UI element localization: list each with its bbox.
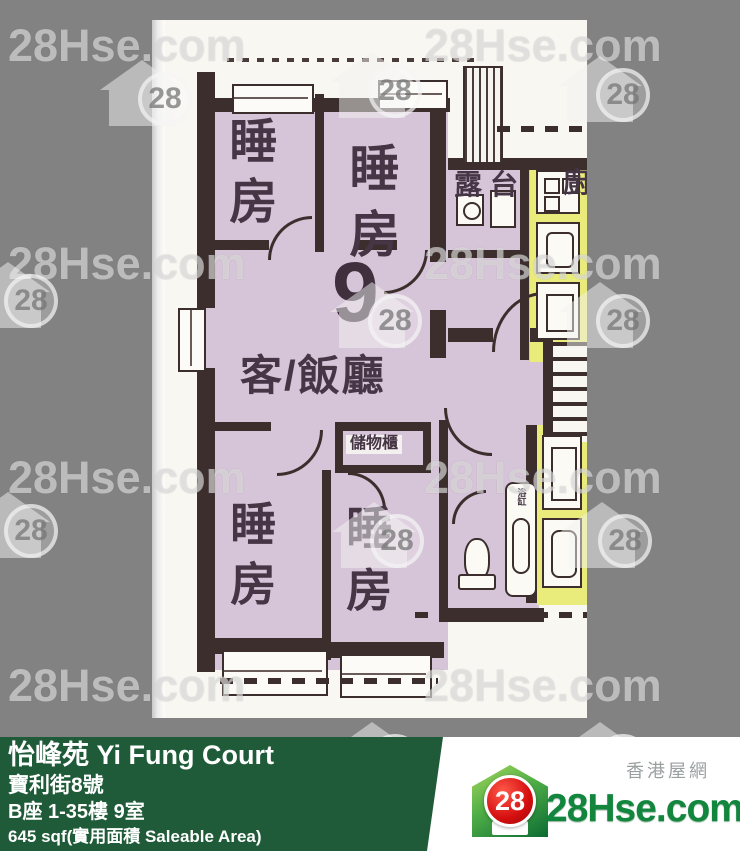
- bay-window: [178, 308, 206, 372]
- site-tagline-cn: 香港屋網: [626, 757, 710, 783]
- street-address: 寶利街8號: [8, 772, 274, 799]
- watermark-28-badge: 28: [4, 504, 58, 558]
- wall: [439, 420, 448, 615]
- balcony-label: 露台: [454, 170, 526, 199]
- wall: [197, 368, 215, 425]
- block-floor-unit: B座 1-35樓 9室: [8, 799, 274, 825]
- saleable-area: 645 sqf(實用面積 Saleable Area): [8, 825, 274, 849]
- kitchen-counter: [542, 435, 582, 510]
- bay-window: [222, 650, 328, 696]
- window: [378, 80, 448, 110]
- property-info: 怡峰苑 Yi Fung Court 寶利街8號 B座 1-35樓 9室 645 …: [8, 738, 274, 849]
- dashed-line: [497, 126, 587, 132]
- wall: [205, 240, 269, 250]
- watermark-28-badge: 28: [596, 68, 650, 122]
- watermark-house-icon: 28: [0, 262, 58, 344]
- dashed-line: [415, 612, 587, 618]
- site-name: 28Hse.com: [546, 787, 740, 831]
- kitchen-sink: [542, 518, 582, 588]
- scan-edge: [152, 20, 165, 718]
- page: { "watermark": { "text": "28Hse.com", "n…: [0, 0, 740, 851]
- unit-number: 9: [332, 248, 379, 336]
- wall: [315, 94, 324, 252]
- watermark-28-badge: 28: [598, 514, 652, 568]
- watermark-house-icon: 28: [0, 492, 58, 574]
- kitchen-counter: [536, 282, 580, 340]
- dashed-line: [220, 678, 438, 684]
- bedroom3-label: 睡房: [226, 500, 274, 620]
- toilet-base: [458, 574, 496, 590]
- window: [232, 84, 314, 114]
- storage-label: 儲物櫃: [346, 435, 402, 454]
- site-logo: 28 28Hse.com 香港屋網: [466, 755, 738, 847]
- wall: [205, 422, 271, 431]
- bathtub: 浴缸: [505, 482, 537, 597]
- kitchen-label: 廚: [563, 168, 587, 197]
- logo-28-badge: 28: [484, 775, 536, 827]
- wall: [448, 328, 493, 342]
- wall: [430, 110, 446, 262]
- watermark-28-badge: 28: [4, 274, 58, 328]
- floorplan-image: 浴缸 睡房 睡房 9 客/飯廳 露台 廚 儲物櫃 睡房 睡房: [152, 20, 587, 718]
- wall: [197, 422, 215, 672]
- stairs-common-area: [550, 342, 587, 442]
- bay-window: [340, 654, 432, 698]
- watermark-28-badge: 28: [596, 294, 650, 348]
- living-dining-label: 客/飯廳: [240, 354, 386, 398]
- wall: [448, 250, 528, 258]
- wall: [430, 310, 446, 358]
- bathtub-label: 浴缸: [516, 488, 525, 506]
- kitchen-sink: [536, 222, 580, 274]
- wall: [335, 422, 423, 431]
- estate-name: 怡峰苑 Yi Fung Court: [8, 738, 274, 772]
- bedroom4-label: 睡房: [342, 504, 390, 628]
- wall: [543, 342, 553, 442]
- wall: [322, 470, 331, 660]
- bedroom1-label: 睡房: [222, 116, 272, 236]
- dashed-line: [227, 58, 477, 62]
- duct-shaft: [463, 66, 503, 164]
